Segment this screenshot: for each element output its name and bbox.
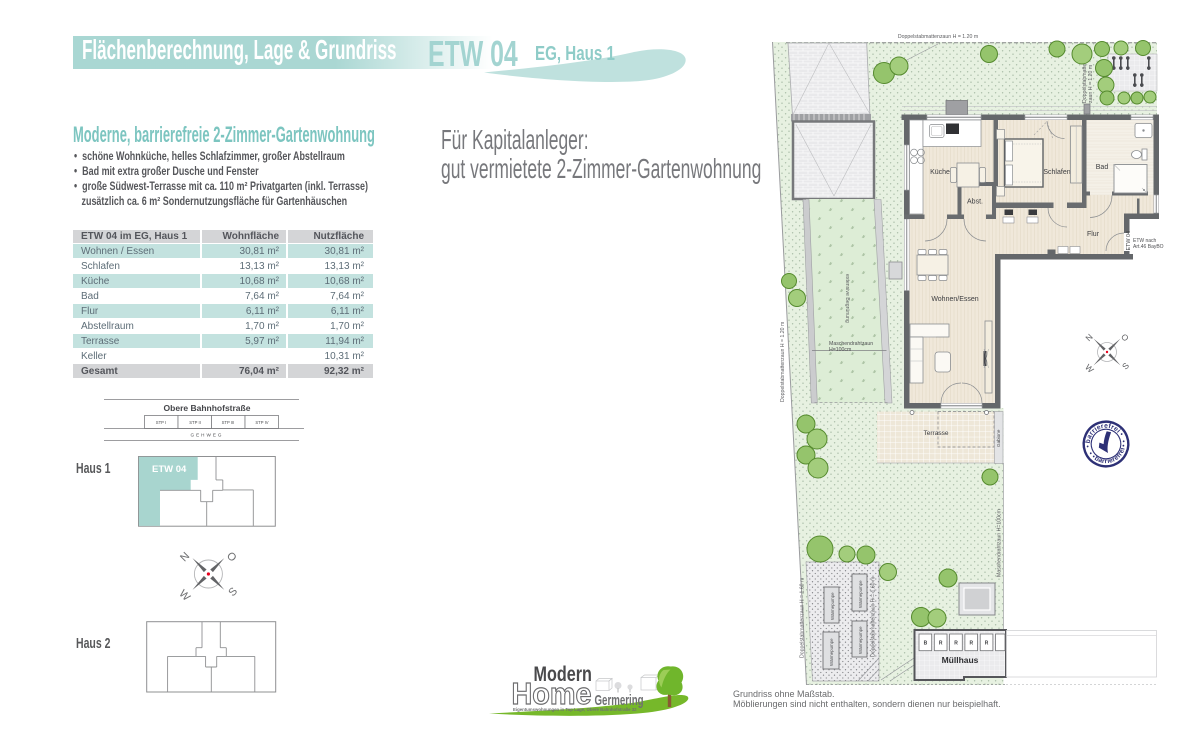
- svg-text:R: R: [969, 641, 973, 647]
- svg-text:S: S: [226, 585, 240, 599]
- svg-text:N: N: [178, 550, 192, 564]
- svg-text:STP II: STP II: [189, 420, 201, 425]
- svg-text:S: S: [1120, 360, 1131, 371]
- svg-text:N: N: [1083, 332, 1094, 343]
- svg-text:GEHWEG: GEHWEG: [191, 433, 224, 438]
- svg-text:STP IV: STP IV: [255, 420, 268, 425]
- svg-text:Doppelstabmattenzaun H = 1.20: Doppelstabmattenzaun H = 1.20 m: [780, 322, 786, 402]
- svg-text:STP III: STP III: [222, 420, 235, 425]
- svg-text:W: W: [176, 588, 192, 604]
- svg-text:Schlafen: Schlafen: [1043, 169, 1070, 176]
- svg-text:Küche: Küche: [930, 169, 950, 176]
- svg-text:Terrasse: Terrasse: [924, 430, 949, 437]
- svg-text:Wärmepumpe: Wärmepumpe: [830, 592, 835, 620]
- svg-text:Doppelstabmattenzaun H = 1.20: Doppelstabmattenzaun H = 1.20 m: [898, 34, 978, 40]
- svg-text:Obere Bahnhofstraße: Obere Bahnhofstraße: [164, 403, 251, 413]
- svg-text:O: O: [1119, 332, 1131, 344]
- svg-text:R: R: [939, 641, 943, 647]
- svg-text:Wärmepumpe: Wärmepumpe: [858, 626, 863, 654]
- svg-text:W: W: [1083, 362, 1096, 375]
- svg-text:ETW 04: ETW 04: [152, 464, 187, 475]
- svg-text:Art.46 BayBO: Art.46 BayBO: [1133, 244, 1164, 250]
- svg-text:Doppelstabmattenzaun H = 1.60: Doppelstabmattenzaun H = 1.60 m: [800, 578, 806, 658]
- svg-text:ETW 04: ETW 04: [1126, 231, 1132, 250]
- svg-text:Müllhaus: Müllhaus: [942, 655, 979, 665]
- svg-text:Wärmepumpe: Wärmepumpe: [858, 580, 863, 608]
- svg-text:STP I: STP I: [156, 420, 166, 425]
- svg-text:Abst.: Abst.: [967, 199, 983, 206]
- svg-text:B: B: [924, 641, 928, 647]
- svg-text:Flur: Flur: [1087, 231, 1100, 238]
- svg-text:Wohnen/Essen: Wohnen/Essen: [931, 296, 978, 303]
- svg-text:Wärmepumpe: Wärmepumpe: [829, 638, 834, 666]
- svg-text:Doppelstabmattenzaun H = 1.60: Doppelstabmattenzaun H = 1.60 m: [871, 577, 877, 657]
- svg-text:Gabione: Gabione: [996, 429, 1001, 447]
- svg-text:extensive Begrünung: extensive Begrünung: [844, 274, 850, 323]
- svg-text:zaun H = 1.20 m: zaun H = 1.20 m: [1088, 65, 1094, 103]
- svg-text:R: R: [985, 641, 989, 647]
- svg-text:R: R: [954, 641, 958, 647]
- svg-text:Eigentumswohnungen in Top Lage: Eigentumswohnungen in Top Lage, Obere Ba…: [513, 707, 637, 712]
- svg-text:Maschendrahtzaun H=100cm: Maschendrahtzaun H=100cm: [997, 509, 1003, 577]
- svg-text:H=100cm: H=100cm: [829, 347, 851, 353]
- svg-text:O: O: [224, 550, 239, 565]
- svg-text:Bad: Bad: [1096, 164, 1109, 171]
